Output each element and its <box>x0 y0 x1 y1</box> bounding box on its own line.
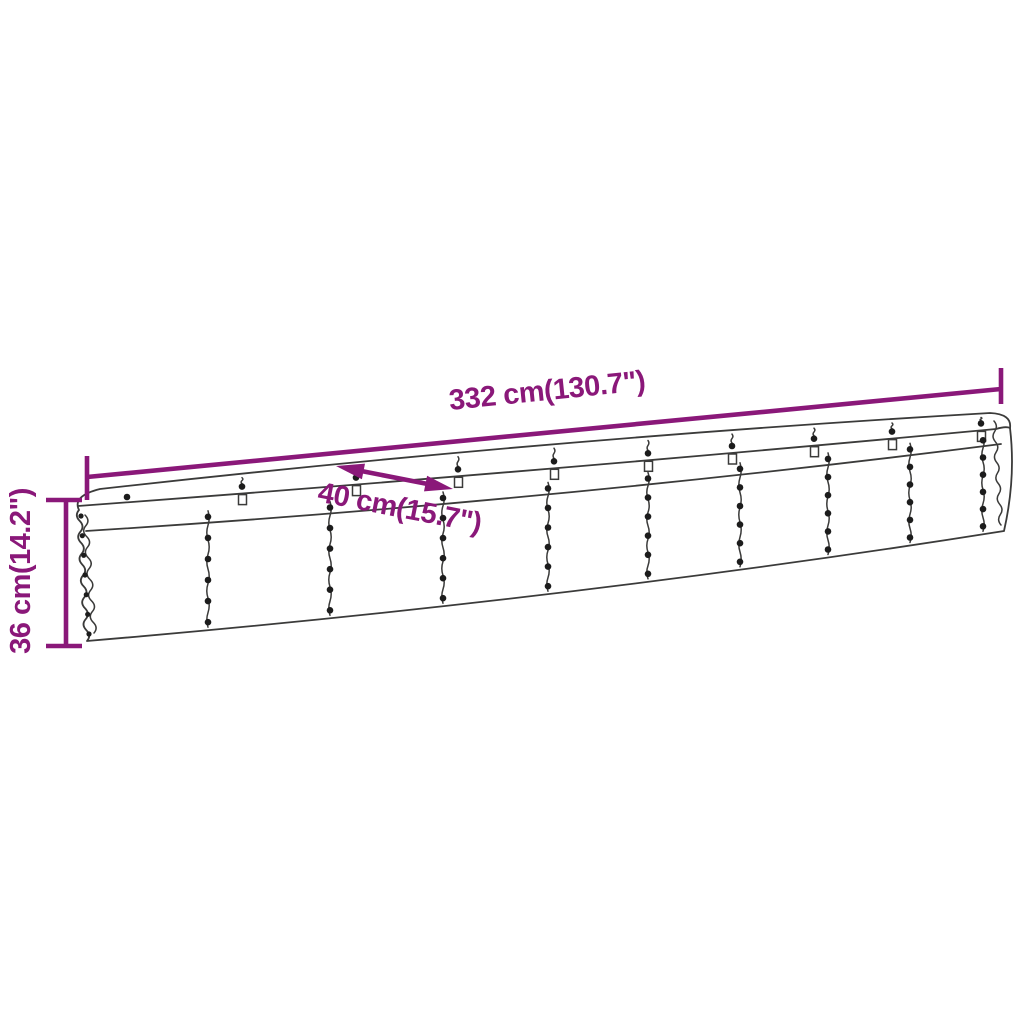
dimension-height-label: 36 cm(14.2") <box>5 488 37 654</box>
dimension-height: 36 cm(14.2") <box>5 488 82 654</box>
diagram-canvas: 332 cm(130.7") 40 cm(15.7") 36 cm(14.2") <box>0 0 1024 1024</box>
dimension-length-label: 332 cm(130.7") <box>447 365 646 417</box>
product-diagram: 332 cm(130.7") 40 cm(15.7") 36 cm(14.2") <box>0 0 1024 1024</box>
planter-drawing <box>77 413 1012 641</box>
planter-body <box>77 413 1012 641</box>
dimension-height-line <box>46 500 82 646</box>
